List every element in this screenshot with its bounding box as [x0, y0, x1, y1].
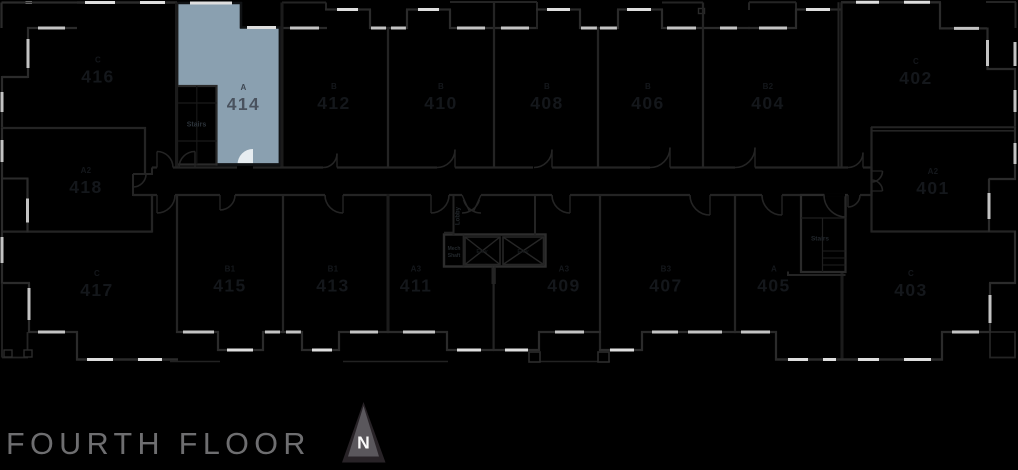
svg-text:B: B [645, 82, 651, 91]
svg-text:418: 418 [69, 177, 102, 197]
svg-text:B: B [544, 82, 550, 91]
svg-text:417: 417 [80, 280, 113, 300]
svg-text:B1: B1 [225, 265, 236, 274]
svg-text:401: 401 [916, 178, 949, 198]
svg-text:409: 409 [547, 276, 580, 296]
svg-text:404: 404 [751, 93, 784, 113]
svg-text:Elev: Elev [476, 249, 488, 255]
svg-text:C: C [913, 57, 919, 66]
svg-text:414: 414 [227, 94, 260, 114]
svg-text:Lobby: Lobby [456, 206, 462, 225]
svg-text:A2: A2 [81, 166, 92, 175]
svg-text:B3: B3 [661, 265, 672, 274]
svg-text:405: 405 [757, 276, 790, 296]
svg-text:412: 412 [317, 93, 350, 113]
svg-text:416: 416 [81, 67, 114, 87]
svg-text:A3: A3 [411, 265, 422, 274]
svg-text:415: 415 [213, 276, 246, 296]
svg-text:Mech: Mech [448, 246, 461, 252]
svg-text:C: C [94, 269, 100, 278]
svg-text:Elev: Elev [517, 249, 529, 255]
svg-text:Stairs: Stairs [187, 122, 207, 129]
svg-text:C: C [908, 269, 914, 278]
svg-text:413: 413 [316, 276, 349, 296]
svg-text:B: B [438, 82, 444, 91]
svg-text:B: B [331, 82, 337, 91]
svg-text:B1: B1 [328, 265, 339, 274]
svg-text:407: 407 [649, 276, 682, 296]
svg-text:408: 408 [530, 93, 563, 113]
svg-text:A2: A2 [928, 167, 939, 176]
svg-text:A3: A3 [559, 265, 570, 274]
svg-text:A: A [771, 265, 777, 274]
svg-text:Stairs: Stairs [811, 236, 829, 243]
svg-text:406: 406 [631, 93, 664, 113]
svg-text:N: N [357, 433, 370, 453]
svg-text:Shaft: Shaft [448, 253, 461, 259]
svg-text:C: C [95, 56, 101, 65]
svg-text:B2: B2 [763, 82, 774, 91]
svg-text:FOURTH FLOOR: FOURTH FLOOR [6, 427, 311, 461]
svg-text:403: 403 [894, 280, 927, 300]
svg-text:A: A [241, 83, 247, 92]
svg-text:410: 410 [424, 93, 457, 113]
svg-text:411: 411 [400, 276, 432, 296]
svg-text:402: 402 [899, 68, 932, 88]
